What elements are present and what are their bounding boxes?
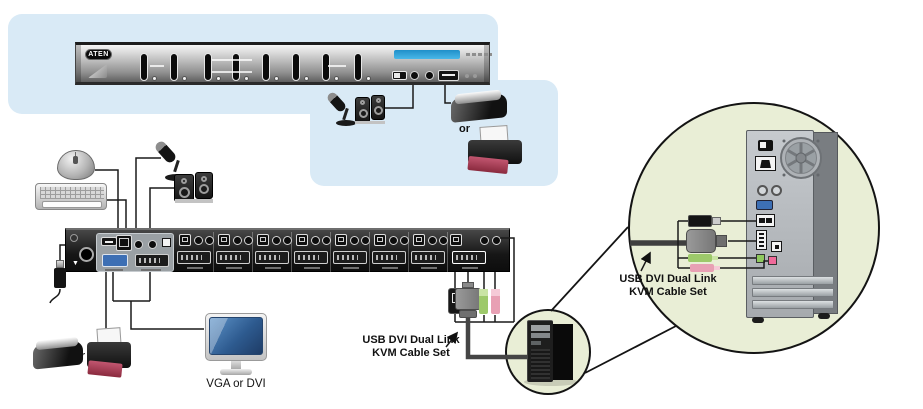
- cpu-speaker-jack: [244, 236, 253, 245]
- dvi-port-label: [141, 269, 161, 271]
- cpu-speaker-jack: [322, 236, 331, 245]
- kvm-cable-speaker-plug: [491, 289, 500, 314]
- printer-tray: [467, 156, 508, 174]
- port-led-5: [274, 76, 279, 81]
- zoom-kvm-cable-set-label: USB DVI Dual Link KVM Cable Set: [612, 273, 724, 299]
- port-led-2: [182, 76, 187, 81]
- ac-inlet-socket: [760, 160, 771, 168]
- tower-side: [552, 324, 573, 380]
- cpu-usb-port: [335, 234, 347, 246]
- kvm-switch-rear-panel: ▼: [65, 228, 510, 272]
- installation-diagram: ATEN ▼: [0, 0, 923, 409]
- rocker-power-switch: [758, 140, 773, 151]
- usb-slot: [766, 218, 772, 223]
- cpu-usb-port: [257, 234, 269, 246]
- callout-tangent-lower: [585, 326, 676, 373]
- brand-logo: ATEN: [85, 49, 112, 60]
- cooling-fan: [779, 136, 823, 180]
- panel-print-lineout: [212, 71, 252, 73]
- cpu-dvi-port: [372, 251, 406, 264]
- cpu-mic-jack: [272, 236, 281, 245]
- console-port-section: [96, 233, 174, 272]
- audio-out-port: [756, 254, 765, 263]
- woofer: [179, 187, 190, 198]
- cpu-usb-port: [296, 234, 308, 246]
- cpu-usb-port: [374, 234, 386, 246]
- kvm-cable-set-label: USB DVI Dual Link KVM Cable Set: [352, 334, 470, 360]
- cpu-port-group-1: [175, 232, 214, 272]
- cpu-speaker-jack: [439, 236, 448, 245]
- expansion-slot-cover: [752, 288, 834, 297]
- console-scanner-icon: [33, 334, 83, 372]
- cpu-mic-jack: [194, 236, 203, 245]
- speaker-left: [174, 174, 194, 202]
- monitor-neck: [231, 361, 241, 369]
- console-optical-port: [162, 238, 171, 247]
- cpu-port-group-3: [253, 232, 292, 272]
- zoom-kvm-cable-set-label-line2: KVM Cable Set: [612, 286, 724, 299]
- zoom-usb-a-tip: [712, 217, 721, 225]
- speaker-right: [371, 95, 385, 120]
- cpu-dvi-port: [333, 251, 367, 264]
- keyboard-cable: [107, 200, 126, 228]
- lcd-display: [394, 50, 460, 59]
- cpu-port-label: [421, 267, 437, 269]
- console-speaker-jack: [148, 240, 157, 249]
- speakers-icon: [174, 172, 216, 204]
- cpu-dvi-port: [452, 251, 486, 264]
- port-button-7[interactable]: [322, 53, 330, 81]
- port-button-2[interactable]: [170, 53, 178, 81]
- cpu-dvi-port: [216, 251, 250, 264]
- model-text: [466, 53, 492, 56]
- keyboard-keys: [40, 187, 104, 199]
- speaker-left: [355, 97, 370, 123]
- mouse-wheel: [73, 156, 78, 164]
- front-panel-icon-b: [473, 74, 477, 78]
- ps2-keyboard-port: [757, 185, 768, 196]
- vga-port: [756, 200, 773, 210]
- cpu-port-label: [226, 267, 242, 269]
- console-mic-jack: [134, 240, 143, 249]
- cpu-port-group-8-connected: [448, 232, 506, 272]
- power-button: [531, 341, 541, 345]
- usb-ports-block: [756, 214, 775, 227]
- grounding-terminal: [70, 234, 78, 242]
- front-panel-right-cap: [484, 45, 489, 82]
- kvm-cable-set-label-line1: USB DVI Dual Link: [352, 334, 470, 347]
- cpu-port-group-5: [331, 232, 370, 272]
- tweeter: [360, 100, 365, 105]
- cpu-usb-port: [413, 234, 425, 246]
- mic-base: [336, 120, 356, 126]
- cpu-port-label: [343, 267, 359, 269]
- plug-tip: [56, 260, 64, 268]
- expansion-slot-cover: [752, 300, 834, 309]
- cpu-mic-jack: [311, 236, 320, 245]
- cpu-usb-port: [179, 234, 191, 246]
- port-button-8[interactable]: [354, 53, 362, 81]
- port-led-8: [366, 76, 371, 81]
- cpu-speaker-jack: [492, 236, 501, 245]
- zoom-speaker-plug-tip: [714, 266, 720, 270]
- expansion-slot-cover: [752, 276, 834, 285]
- cpu-speaker-jack: [361, 236, 370, 245]
- cpu-port-label: [304, 267, 320, 269]
- monitor-base: [220, 369, 252, 375]
- ps2-mouse-port: [771, 185, 782, 196]
- kvm-cable-mic-plug: [479, 289, 488, 314]
- port-button-3[interactable]: [204, 53, 212, 81]
- computer-tower-rear: [744, 124, 840, 324]
- mic-head: [153, 139, 177, 164]
- cpu-port-label: [265, 267, 281, 269]
- cpu-port-group-4: [292, 232, 331, 272]
- plug-body: [54, 268, 66, 288]
- monitor-cable: [113, 272, 204, 329]
- woofer: [359, 109, 368, 118]
- vga-port-label: [105, 269, 123, 271]
- cpu-mic-jack: [233, 236, 242, 245]
- zoom-kvm-cable-set-label-line1: USB DVI Dual Link: [612, 273, 724, 286]
- zoom-mic-plug-tip: [712, 256, 718, 260]
- kvm-cable-dvi-connector: [455, 288, 481, 310]
- kvm-switch-front-panel: ATEN: [75, 42, 490, 85]
- console-usb-peripheral-port: [101, 237, 117, 246]
- cpu-port-label: [462, 267, 478, 269]
- port-button-4[interactable]: [232, 53, 240, 81]
- ac-power-inlet: [755, 156, 776, 171]
- console-dvi-port: [135, 254, 169, 267]
- cpu-speaker-jack: [205, 236, 214, 245]
- console-keyboard-mouse-usb-ports: [116, 235, 132, 251]
- port-led-1: [152, 76, 157, 81]
- tweeter: [376, 98, 381, 103]
- cpu-speaker-jack: [400, 236, 409, 245]
- panel-print-mode: [328, 65, 346, 67]
- front-vent: [531, 349, 550, 379]
- port-led-4: [244, 76, 249, 81]
- cpu-port-label: [382, 267, 398, 269]
- cpu-port-label: [187, 267, 203, 269]
- zoom-usb-a-connector: [688, 215, 712, 227]
- port-led-3: [216, 76, 221, 81]
- panel-print-volume: [212, 59, 252, 61]
- panel-print-autoscan: [150, 65, 164, 67]
- woofer: [374, 106, 383, 115]
- kvm-cable-dvi-taper: [459, 310, 477, 318]
- front-scanner-icon: [451, 88, 507, 124]
- woofer: [199, 184, 209, 194]
- cpu-mic-jack: [428, 236, 437, 245]
- power-adapter-plug: [48, 258, 68, 294]
- kvm-cable-set-label-line2: KVM Cable Set: [352, 347, 470, 360]
- computer-tower-small: [520, 316, 580, 388]
- dvi-port: [756, 230, 767, 250]
- network-port: [771, 241, 782, 252]
- front-speaker-jack: [425, 71, 434, 80]
- mouse-icon: [57, 150, 95, 180]
- front-speakers-icon: [355, 95, 387, 125]
- rocker-inner: [760, 142, 766, 148]
- port-led-6: [304, 76, 309, 81]
- tweeter: [181, 178, 187, 184]
- printer-tray: [87, 360, 122, 377]
- speaker-base: [355, 121, 385, 124]
- port-button-1[interactable]: [140, 53, 148, 81]
- cpu-port-group-7: [409, 232, 448, 272]
- port-button-5[interactable]: [262, 53, 270, 81]
- cpu-dvi-port: [294, 251, 328, 264]
- tower-foot: [752, 317, 764, 323]
- front-printer-icon: [466, 126, 528, 176]
- audio-mic-port: [768, 256, 777, 265]
- cpu-usb-port: [450, 234, 462, 246]
- power-jack: [79, 247, 94, 262]
- monitor-screen: [209, 317, 263, 355]
- cpu-usb-port: [218, 234, 230, 246]
- mic-stem: [173, 160, 179, 172]
- mouse-body: [57, 150, 95, 180]
- keyboard-spacebar: [42, 201, 102, 208]
- usb-slot: [759, 218, 765, 223]
- power-arrow-icon: ▼: [72, 260, 79, 267]
- zoom-mic-plug: [688, 254, 712, 262]
- cpu-mic-jack: [389, 236, 398, 245]
- front-mic-jack: [410, 71, 419, 80]
- zoom-dvi-connector: [686, 229, 716, 253]
- speaker-right: [195, 172, 213, 199]
- speaker-base: [175, 199, 213, 203]
- cpu-port-group-2: [214, 232, 253, 272]
- dvi-pins: [759, 233, 764, 247]
- zoom-dvi-tip: [716, 235, 727, 247]
- monitor-icon: [205, 313, 267, 377]
- zoom-speaker-plug: [690, 264, 714, 272]
- front-panel-left-cap: [76, 45, 81, 82]
- console-vga-port: [102, 254, 128, 267]
- cpu-mic-jack: [350, 236, 359, 245]
- front-mode-switch[interactable]: [392, 71, 407, 80]
- front-panel-icon-a: [465, 74, 469, 78]
- front-usb-port: [438, 70, 459, 81]
- dvi-badge-icon: [88, 64, 107, 78]
- cpu-dvi-port: [177, 251, 211, 264]
- port-button-6[interactable]: [292, 53, 300, 81]
- port-led-7: [334, 76, 339, 81]
- keyboard-icon: [35, 183, 107, 210]
- tower-foot: [818, 313, 830, 319]
- cpu-speaker-jack: [283, 236, 292, 245]
- cpu-port-group-6: [370, 232, 409, 272]
- network-slot: [775, 245, 779, 249]
- tweeter: [201, 176, 207, 182]
- cpu-dvi-port: [255, 251, 289, 264]
- console-printer-icon: [87, 328, 135, 380]
- tower-front: [527, 320, 553, 382]
- drive-bay: [531, 325, 550, 331]
- monitor-label: VGA or DVI: [201, 378, 271, 390]
- cpu-mic-jack: [480, 236, 489, 245]
- drive-bay: [531, 333, 550, 338]
- cpu-dvi-port: [411, 251, 445, 264]
